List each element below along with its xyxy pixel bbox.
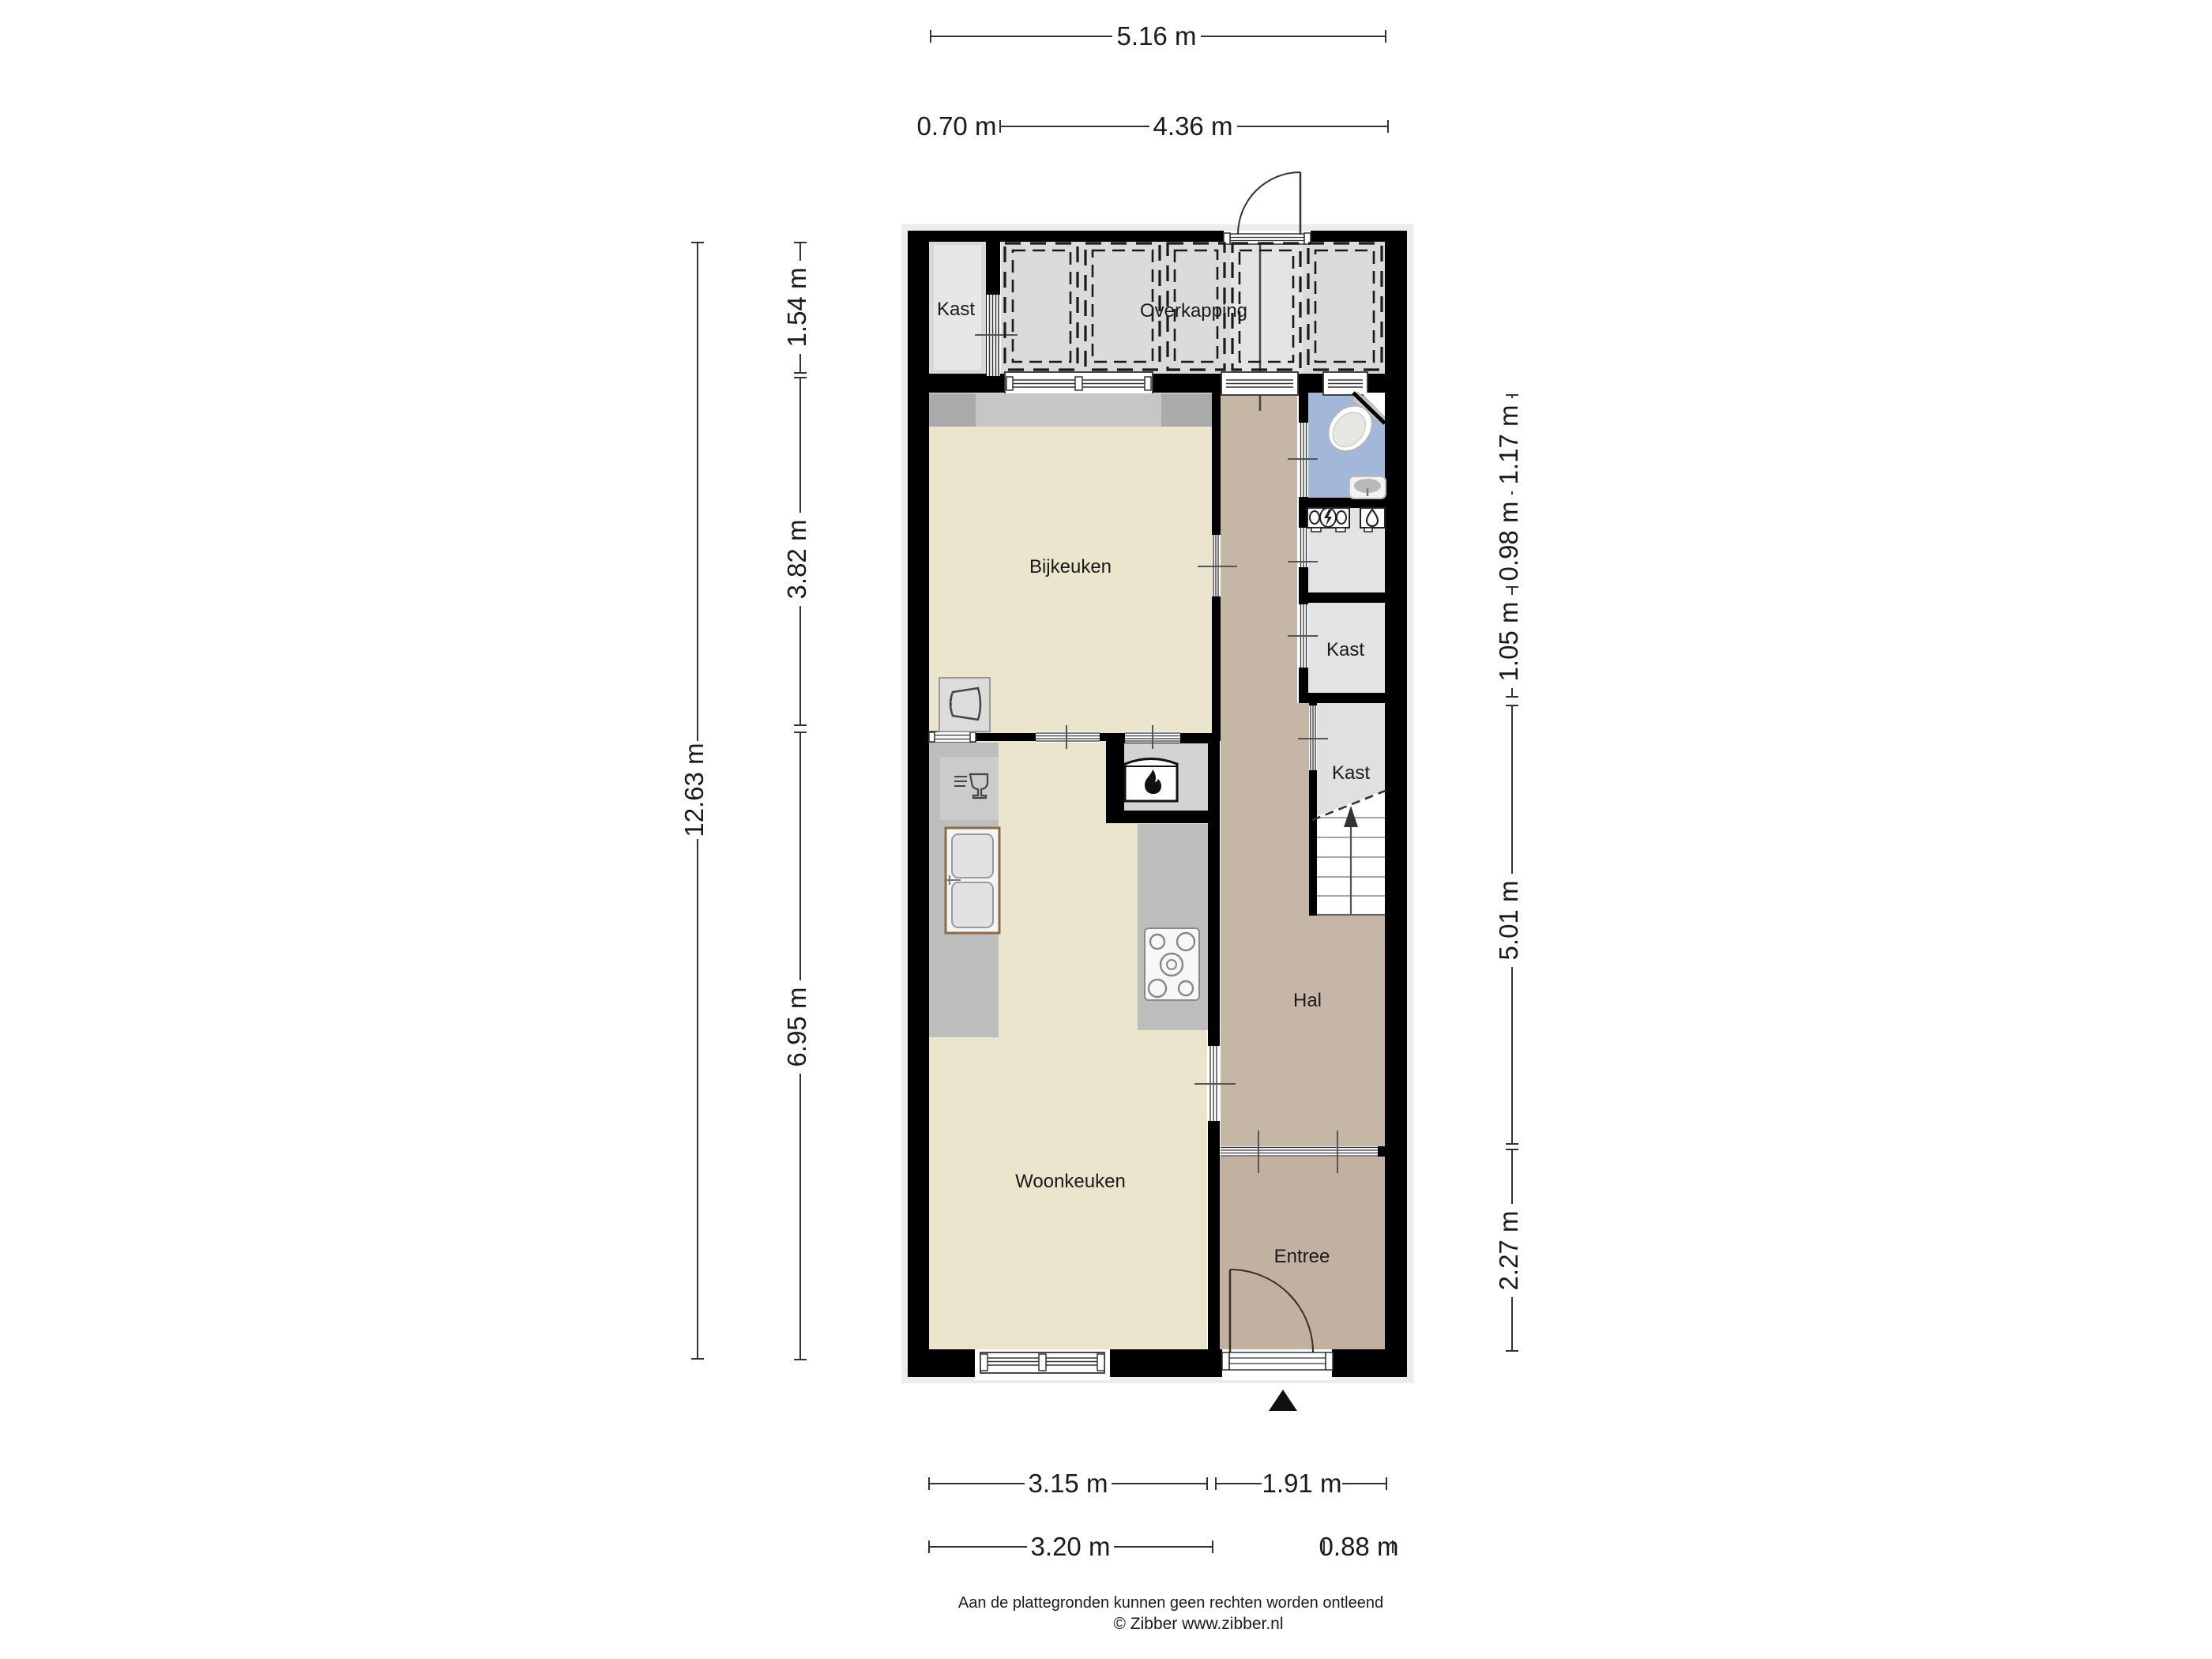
svg-text:1.91 m: 1.91 m [1262,1469,1342,1498]
svg-text:5.16 m: 5.16 m [1117,21,1197,51]
svg-text:6.95 m: 6.95 m [782,987,811,1067]
svg-text:1.54 m: 1.54 m [782,268,811,348]
svg-text:2.27 m: 2.27 m [1494,1211,1523,1291]
svg-text:Kast: Kast [937,299,975,320]
svg-text:Overkapping: Overkapping [1140,300,1247,322]
svg-text:Woonkeuken: Woonkeuken [1015,1171,1126,1192]
svg-text:3.15 m: 3.15 m [1029,1469,1108,1498]
svg-text:0.70 m: 0.70 m [917,111,997,141]
svg-text:0.98 m: 0.98 m [1494,502,1523,581]
svg-text:Hal: Hal [1293,990,1322,1011]
svg-text:1.17 m: 1.17 m [1494,405,1523,485]
svg-text:1.05 m: 1.05 m [1494,602,1523,682]
svg-text:Kast: Kast [1332,762,1370,784]
svg-text:3.82 m: 3.82 m [782,520,811,600]
svg-text:Kast: Kast [1326,639,1364,660]
svg-text:Entree: Entree [1274,1246,1330,1267]
svg-text:3.20 m: 3.20 m [1031,1532,1111,1561]
svg-text:5.01 m: 5.01 m [1494,881,1523,961]
svg-text:12.63 m: 12.63 m [679,743,709,837]
svg-text:© Zibber www.zibber.nl: © Zibber www.zibber.nl [1113,1615,1283,1633]
svg-text:0.88 m: 0.88 m [1319,1532,1399,1561]
svg-text:Aan de plattegronden kunnen ge: Aan de plattegronden kunnen geen rechten… [958,1594,1383,1612]
svg-text:Bijkeuken: Bijkeuken [1029,556,1112,577]
svg-text:4.36 m: 4.36 m [1153,111,1233,141]
